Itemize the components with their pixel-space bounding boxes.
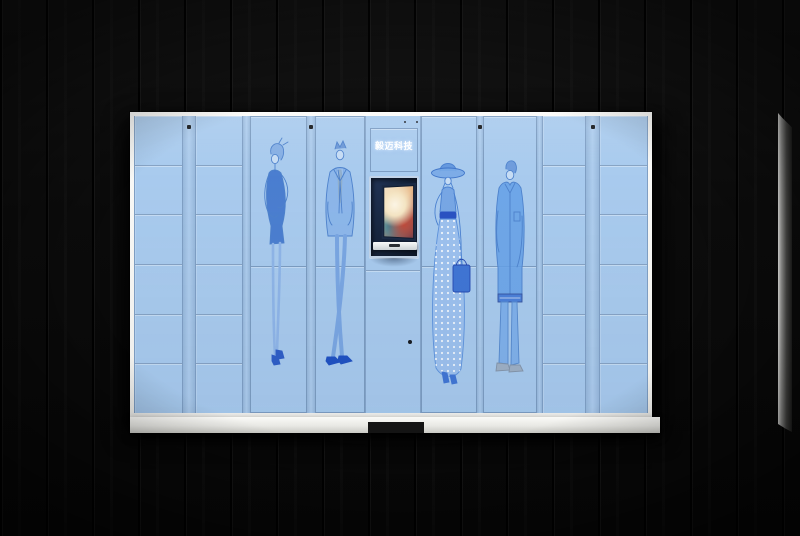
screen-content-fashion-photo	[384, 186, 413, 238]
small-locker-door[interactable]	[600, 215, 647, 265]
tall-door-upper[interactable]	[421, 116, 477, 267]
small-locker-door[interactable]	[135, 116, 182, 166]
locker-column-right-outer	[599, 116, 648, 413]
divider-strip	[307, 116, 315, 413]
tall-door-upper[interactable]	[315, 116, 365, 267]
brand-label: 毅迈科技	[375, 139, 413, 171]
product-photo-stage: 毅迈科技	[0, 0, 800, 536]
keypad-ledge[interactable]	[373, 242, 417, 250]
small-locker-door[interactable]	[600, 265, 647, 315]
small-locker-door[interactable]	[196, 116, 242, 166]
tall-door-upper[interactable]	[250, 116, 307, 267]
small-locker-door[interactable]	[135, 215, 182, 265]
small-locker-door[interactable]	[196, 265, 242, 315]
small-locker-door[interactable]	[543, 315, 585, 365]
divider-strip	[243, 116, 250, 413]
control-console-column: 毅迈科技	[365, 116, 421, 413]
small-locker-door[interactable]	[543, 265, 585, 315]
small-locker-door[interactable]	[600, 315, 647, 365]
small-locker-door[interactable]	[135, 166, 182, 216]
smart-locker-cabinet: 毅迈科技	[130, 112, 663, 438]
tall-door-woman-dress	[250, 116, 307, 413]
keylock-icon	[478, 125, 482, 129]
divider-strip	[183, 116, 195, 413]
small-locker-door[interactable]	[196, 166, 242, 216]
cabinet-face: 毅迈科技	[134, 116, 648, 413]
small-locker-door[interactable]	[543, 166, 585, 216]
locker-column-right-inner	[542, 116, 586, 413]
small-locker-door[interactable]	[543, 215, 585, 265]
cabinet-side-panel	[778, 113, 792, 432]
small-locker-door[interactable]	[196, 215, 242, 265]
console-seam	[366, 270, 420, 271]
keylock-icon	[591, 125, 595, 129]
small-locker-door[interactable]	[600, 166, 647, 216]
screw-icons	[404, 121, 418, 124]
small-locker-door[interactable]	[543, 116, 585, 166]
console-screen[interactable]	[382, 183, 416, 241]
screen-recess	[369, 176, 419, 258]
keylock-icon	[408, 340, 412, 344]
small-locker-door[interactable]	[600, 116, 647, 166]
tall-door-lower[interactable]	[250, 267, 307, 413]
small-locker-door[interactable]	[543, 364, 585, 413]
small-locker-door[interactable]	[135, 265, 182, 315]
small-locker-door[interactable]	[196, 364, 242, 413]
tall-door-lower[interactable]	[421, 267, 477, 413]
small-locker-door[interactable]	[135, 364, 182, 413]
tall-door-lower[interactable]	[483, 267, 537, 413]
cabinet-base	[130, 417, 660, 433]
card-slot[interactable]	[389, 244, 400, 247]
locker-column-left-inner	[195, 116, 243, 413]
divider-strip	[586, 116, 599, 413]
tall-door-woman-hat	[421, 116, 477, 413]
base-kick-notch	[368, 422, 424, 433]
tall-door-man-suit	[315, 116, 365, 413]
recess-shadow	[369, 258, 419, 267]
keylock-icon	[309, 125, 313, 129]
tall-door-upper[interactable]	[483, 116, 537, 267]
small-locker-door[interactable]	[600, 364, 647, 413]
tall-door-man-casual	[483, 116, 537, 413]
tall-door-lower[interactable]	[315, 267, 365, 413]
locker-column-left-outer	[134, 116, 183, 413]
keylock-icon	[187, 125, 191, 129]
small-locker-door[interactable]	[135, 315, 182, 365]
brand-panel: 毅迈科技	[370, 128, 418, 172]
small-locker-door[interactable]	[196, 315, 242, 365]
